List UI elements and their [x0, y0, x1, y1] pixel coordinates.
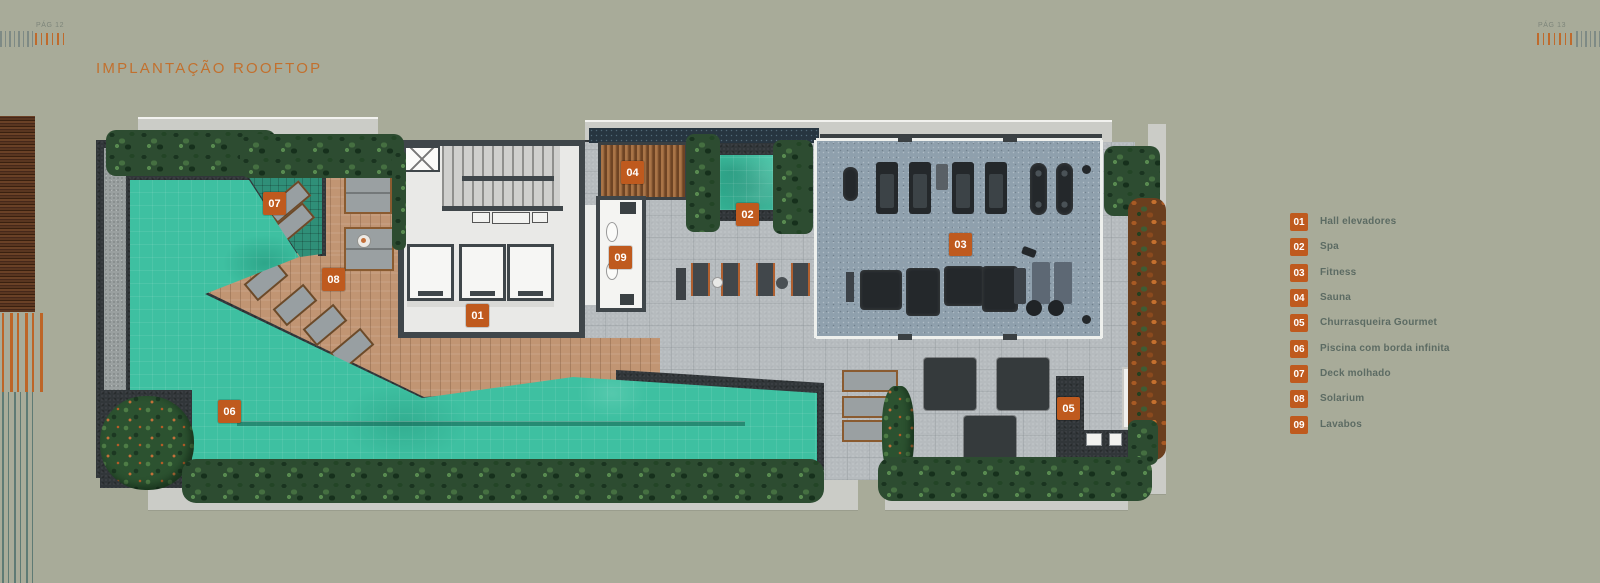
treadmill	[876, 162, 898, 214]
barcode-right-gray	[1576, 31, 1600, 47]
exercise-mat	[1054, 262, 1072, 304]
plan-badge-05: 05	[1057, 397, 1080, 420]
legend-label: Solarium	[1320, 390, 1364, 408]
fitness-glass-bottom	[816, 336, 1102, 339]
gym-bench	[846, 272, 854, 302]
deco-teal-lines	[2, 392, 36, 583]
spa-chair	[791, 263, 810, 296]
spin-bike	[1030, 163, 1047, 215]
wall-post	[898, 334, 912, 340]
fitness-glass-left	[814, 140, 817, 338]
legend-label: Churrasqueira Gourmet	[1320, 314, 1437, 332]
hedge-bottom-right	[878, 457, 1152, 501]
spa-chair	[691, 263, 710, 296]
hedge-top	[240, 134, 404, 178]
patio-umbrella	[997, 358, 1049, 410]
pool-lane-line	[237, 421, 745, 426]
exercise-ball	[1048, 300, 1064, 316]
legend-badge: 08	[1290, 390, 1308, 408]
treadmill-deck	[956, 174, 970, 208]
plan-badge-03: 03	[949, 233, 972, 256]
plan-badge-08: 08	[322, 268, 345, 291]
deco-wood-strip	[0, 116, 35, 312]
plan-badge-09: 09	[609, 246, 632, 269]
exercise-mat	[1032, 262, 1050, 304]
plan-badge-06: 06	[218, 400, 241, 423]
plan-badge-01: 01	[466, 304, 489, 327]
elliptical-machine	[843, 167, 858, 201]
washbasin	[606, 222, 618, 242]
elevator-door	[470, 291, 495, 296]
legend-label: Piscina com borda infinita	[1320, 340, 1450, 358]
exercise-ball	[1026, 300, 1042, 316]
bench-press-station	[860, 270, 902, 310]
elevator	[407, 244, 454, 301]
barcode-right-orange	[1537, 33, 1573, 45]
wall-post	[1003, 136, 1017, 142]
page-number-left: PÁG 12	[36, 22, 64, 29]
legend-badge: 09	[1290, 416, 1308, 434]
legend-label: Spa	[1320, 238, 1339, 256]
elevator	[507, 244, 554, 301]
solarium-lounger	[344, 227, 394, 271]
elevator-door	[418, 291, 443, 296]
legend-label: Sauna	[1320, 289, 1351, 307]
legend-badge: 05	[1290, 314, 1308, 332]
exercise-ball-small	[1082, 165, 1091, 174]
toilet	[620, 294, 634, 305]
fitness-glass-top	[816, 138, 1102, 141]
fitness-glass-right	[1100, 140, 1103, 338]
stair-wall	[442, 206, 563, 211]
sink	[1109, 433, 1122, 446]
spa-pool	[720, 155, 774, 210]
treadmill	[985, 162, 1007, 214]
treadmill-deck	[989, 174, 1003, 208]
cup	[361, 238, 366, 243]
treadmill-deck	[880, 174, 894, 208]
spa-bench	[676, 268, 686, 300]
spin-bike	[1056, 163, 1073, 215]
legend-badge: 06	[1290, 340, 1308, 358]
wall-post	[898, 136, 912, 142]
exercise-ball-small	[1082, 315, 1091, 324]
gym-divider	[936, 164, 948, 190]
legend-label: Fitness	[1320, 264, 1356, 282]
page-number-right: PÁG 13	[1538, 22, 1566, 29]
deco-orange-lines	[2, 313, 44, 392]
lobby-counter	[532, 212, 548, 223]
weight-machine	[982, 266, 1018, 312]
spa-chair	[721, 263, 740, 296]
spa-table	[776, 277, 788, 289]
legend-label: Lavabos	[1320, 416, 1362, 434]
hedge-spa-left	[686, 134, 720, 232]
service-shaft	[404, 146, 440, 172]
squat-rack	[906, 268, 940, 316]
stair-rail	[462, 176, 554, 181]
legend-badge: 07	[1290, 365, 1308, 383]
treadmill	[909, 162, 931, 214]
spa-chair	[756, 263, 775, 296]
hedge-building-side	[392, 150, 406, 250]
solarium-lounger	[344, 172, 392, 214]
elevator	[459, 244, 506, 301]
spa-table	[712, 277, 723, 288]
plan-badge-07: 07	[263, 192, 286, 215]
toilet	[620, 202, 636, 214]
weight-machine	[944, 266, 984, 306]
legend-badge: 03	[1290, 264, 1308, 282]
lobby-counter	[492, 212, 530, 224]
barcode-left-gray	[0, 31, 33, 47]
hedge-spa-right	[773, 140, 813, 234]
gym-shelf	[1014, 268, 1026, 304]
barcode-left-orange	[35, 33, 67, 45]
sink	[1086, 433, 1102, 446]
hedge-bottom-left	[182, 459, 824, 503]
page-title: IMPLANTAÇÃO ROOFTOP	[96, 60, 322, 77]
plan-badge-02: 02	[736, 203, 759, 226]
elevator-door	[518, 291, 543, 296]
legend-badge: 01	[1290, 213, 1308, 231]
legend-label: Deck molhado	[1320, 365, 1391, 383]
lobby-counter	[472, 212, 490, 223]
legend-label: Hall elevadores	[1320, 213, 1396, 231]
legend-badge: 02	[1290, 238, 1308, 256]
patio-umbrella	[924, 358, 976, 410]
treadmill	[952, 162, 974, 214]
flowering-bush	[100, 396, 194, 490]
legend-badge: 04	[1290, 289, 1308, 307]
wall-post	[1003, 334, 1017, 340]
plan-badge-04: 04	[621, 161, 644, 184]
treadmill-deck	[913, 174, 927, 208]
